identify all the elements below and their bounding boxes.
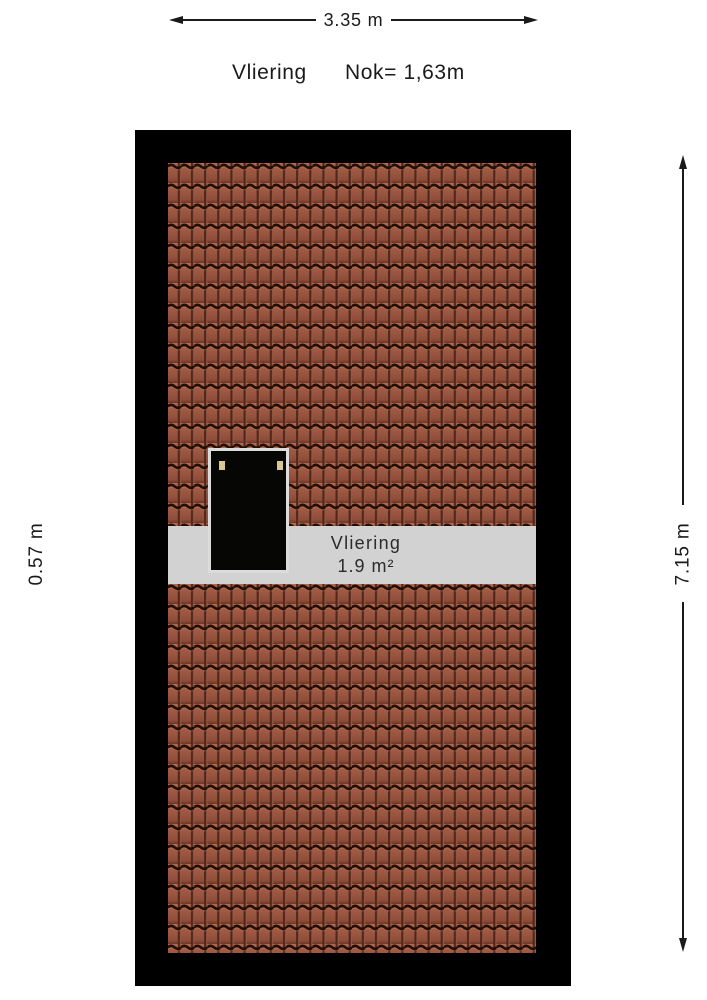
height-dimension: 7.15 m — [675, 155, 691, 952]
room-title: Vliering — [232, 61, 307, 85]
dimension-line — [682, 169, 684, 505]
roof-window — [208, 448, 289, 573]
arrowhead-left-icon — [169, 16, 183, 24]
width-dimension-label: 3.35 m — [316, 10, 392, 31]
band-label-group: Vliering 1.9 m² — [331, 532, 401, 578]
arrowhead-right-icon — [524, 16, 538, 24]
hinge-left — [219, 461, 225, 470]
floorplan-canvas: 3.35 m Vliering Nok= 1,63m — [0, 0, 707, 1000]
dimension-line — [391, 19, 524, 21]
arrowhead-up-icon — [679, 155, 687, 169]
dimension-line — [682, 602, 684, 938]
width-dimension: 3.35 m — [169, 12, 538, 28]
height-dimension-label: 7.15 m — [672, 522, 694, 585]
band-room-label: Vliering — [331, 532, 401, 555]
band-depth-dimension-label: 0.57 m — [26, 523, 48, 586]
roof-tiles-lower — [168, 584, 536, 953]
dimension-line — [183, 19, 316, 21]
band-area-label: 1.9 m² — [331, 555, 401, 578]
hinge-right — [277, 461, 283, 470]
roof-outline: Vliering 1.9 m² — [135, 130, 571, 986]
height-dimension-label-wrap: 7.15 m — [652, 505, 707, 602]
ridge-height-label: Nok= 1,63m — [345, 61, 465, 85]
arrowhead-down-icon — [679, 938, 687, 952]
